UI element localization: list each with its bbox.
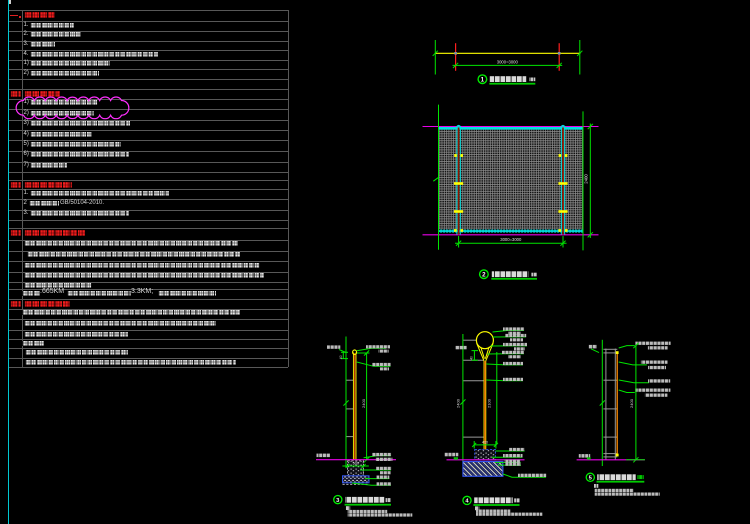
svg-text:3000=3000: 3000=3000 <box>497 59 519 64</box>
svg-text:2400: 2400 <box>629 398 634 408</box>
svg-text:500: 500 <box>353 462 359 466</box>
svg-text:3000=3000: 3000=3000 <box>500 237 522 242</box>
svg-text:2: 2 <box>482 272 486 279</box>
svg-text:2400: 2400 <box>584 174 589 184</box>
svg-text:400: 400 <box>482 440 488 444</box>
svg-text:1: 1 <box>481 77 485 84</box>
svg-text:2100: 2100 <box>487 398 492 408</box>
svg-text:40: 40 <box>470 356 474 360</box>
svg-text:2400: 2400 <box>361 398 366 408</box>
svg-text:2400: 2400 <box>455 398 460 408</box>
svg-text:40: 40 <box>339 355 343 359</box>
